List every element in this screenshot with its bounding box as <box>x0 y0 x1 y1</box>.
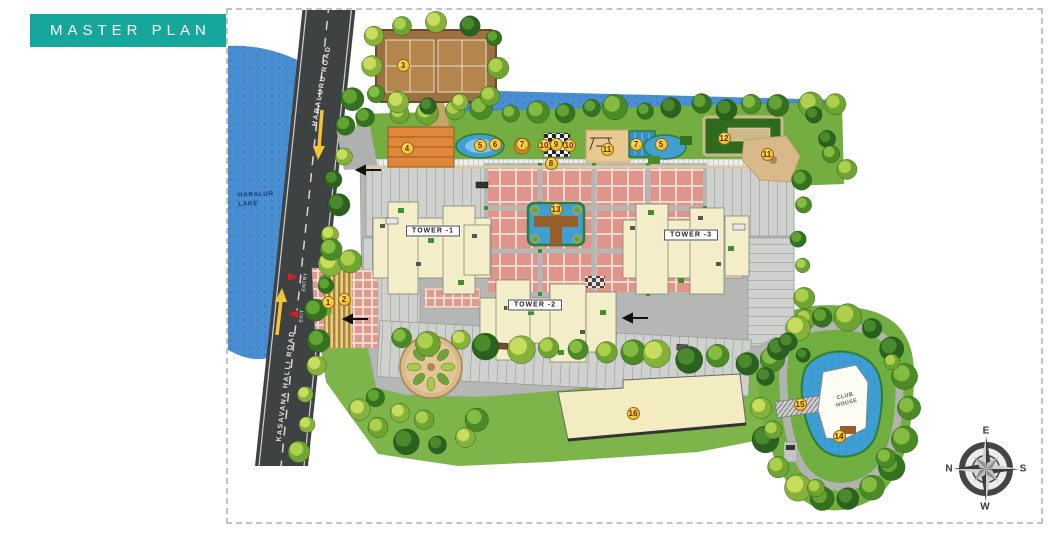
page-title: MASTER PLAN <box>50 22 211 39</box>
site-marker-3: 3 <box>397 59 410 72</box>
site-plan-artwork <box>228 10 1041 522</box>
site-marker-10: 10 <box>563 139 576 152</box>
site-marker-7: 7 <box>630 138 643 151</box>
site-marker-11: 11 <box>761 148 774 161</box>
tennis-courts <box>376 30 496 102</box>
site-marker-5: 5 <box>474 139 487 152</box>
site-marker-12: 12 <box>718 132 731 145</box>
site-marker-16: 16 <box>627 407 640 420</box>
site-marker-15: 15 <box>794 398 807 411</box>
master-plan-badge: MASTER PLAN <box>30 14 231 47</box>
site-marker-7: 7 <box>516 138 529 151</box>
master-plan-page: MASTER PLAN <box>0 0 1052 534</box>
site-marker-6: 6 <box>489 138 502 151</box>
site-marker-10: 10 <box>538 139 551 152</box>
compass-rose <box>953 436 1019 502</box>
site-marker-2: 2 <box>338 293 351 306</box>
site-marker-14: 14 <box>833 430 846 443</box>
site-marker-11: 11 <box>601 143 614 156</box>
site-marker-8: 8 <box>545 157 558 170</box>
site-marker-9: 9 <box>550 138 563 151</box>
site-marker-1: 1 <box>322 296 335 309</box>
site-marker-5: 5 <box>655 138 668 151</box>
site-plan-panel: HARALURLAKE HARALURU ROAD KASAVANA HALLI… <box>226 8 1043 524</box>
site-marker-4: 4 <box>401 142 414 155</box>
site-marker-13: 13 <box>550 203 563 216</box>
